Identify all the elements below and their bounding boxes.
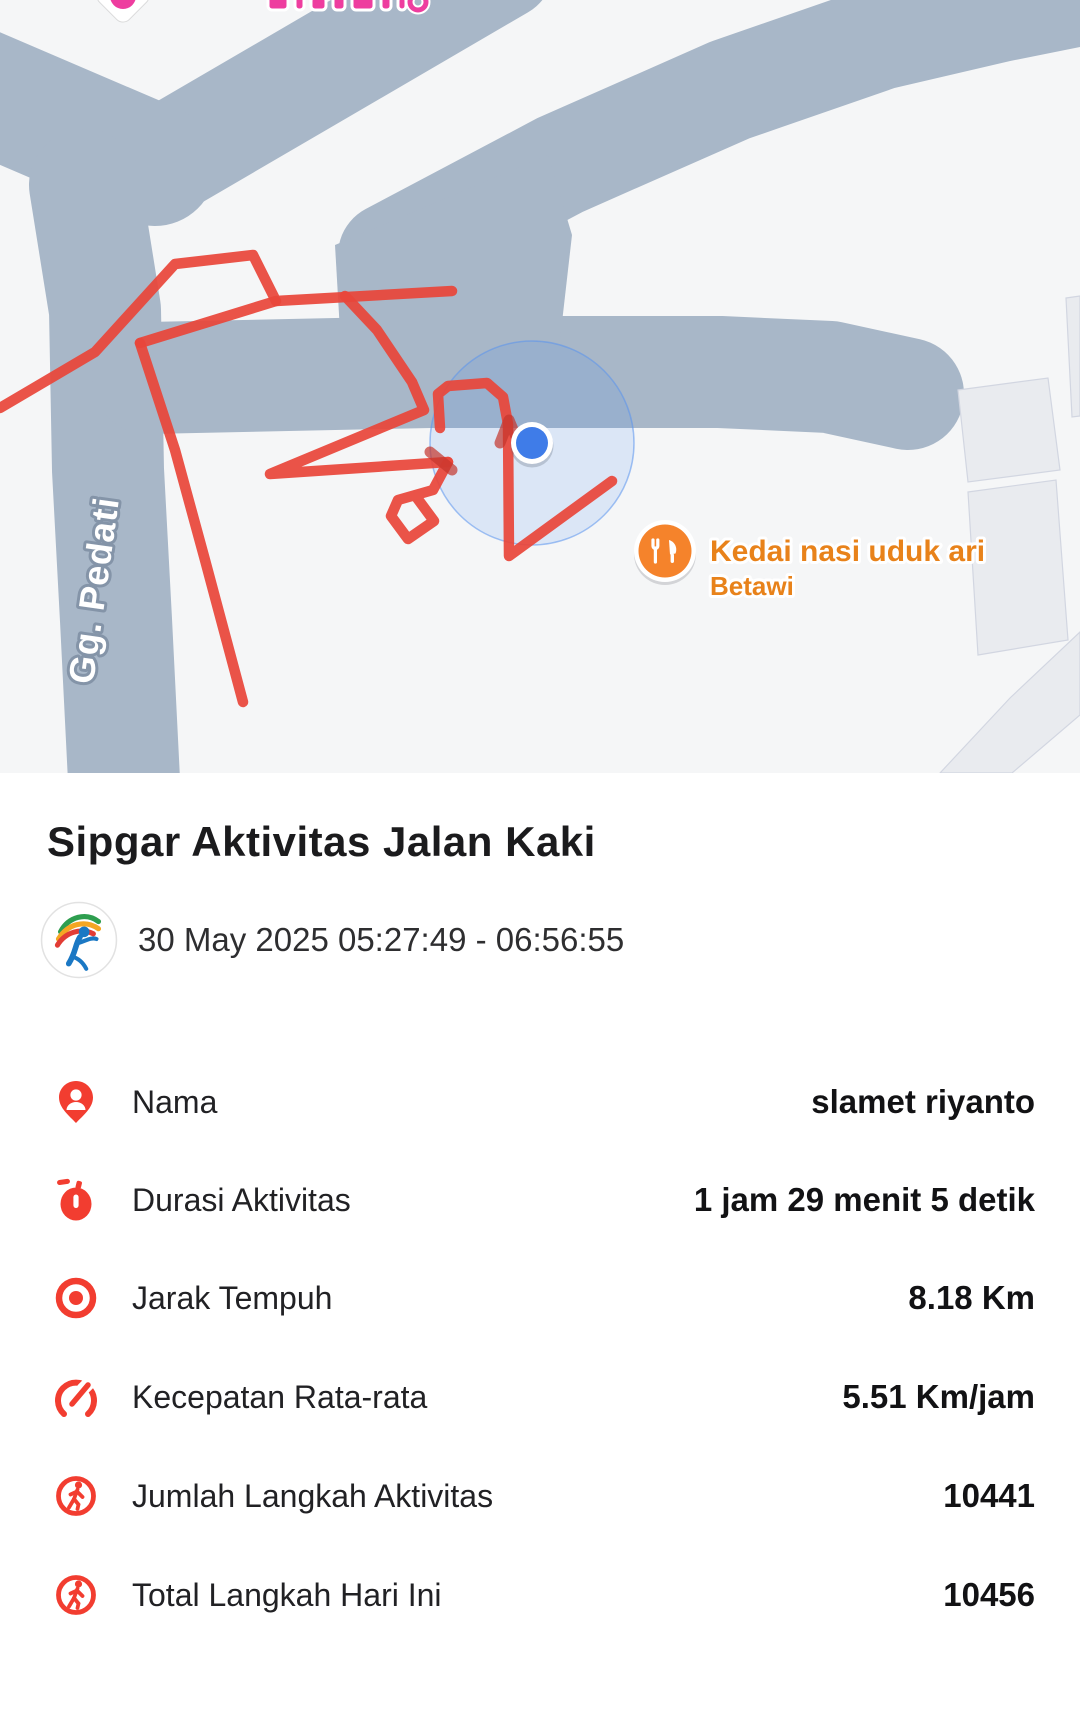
activity-datetime: 30 May 2025 05:27:49 - 06:56:55 <box>138 921 624 959</box>
stat-row-kecepatan: Kecepatan Rata-rata 5.51 Km/jam <box>52 1367 1035 1427</box>
stat-value: 10441 <box>943 1477 1035 1515</box>
steps-icon <box>52 1472 100 1520</box>
stat-row-langkah-aktivitas: Jumlah Langkah Aktivitas 10441 <box>52 1466 1035 1526</box>
stat-row-langkah-total: Total Langkah Hari Ini 10456 <box>52 1565 1035 1625</box>
current-location-dot <box>511 422 554 468</box>
stat-row-nama: Nama slamet riyanto <box>52 1072 1035 1132</box>
stat-value: 1 jam 29 menit 5 detik <box>694 1181 1035 1219</box>
target-icon <box>52 1274 100 1322</box>
restaurant-icon <box>639 525 692 578</box>
stat-value: 8.18 Km <box>908 1279 1035 1317</box>
sipgar-logo <box>40 901 118 979</box>
stopwatch-icon <box>52 1176 100 1224</box>
stat-value: slamet riyanto <box>811 1083 1035 1121</box>
page-title: Sipgar Aktivitas Jalan Kaki <box>47 818 596 866</box>
activity-detail-screen: Kedai nasi uduk ari Betawi Gg. Pedati <box>0 0 1080 1717</box>
stat-label: Durasi Aktivitas <box>132 1182 694 1219</box>
poi-name[interactable]: Kedai nasi uduk ari <box>710 535 985 568</box>
stat-value: 5.51 Km/jam <box>842 1378 1035 1416</box>
stat-row-jarak: Jarak Tempuh 8.18 Km <box>52 1268 1035 1328</box>
speedometer-icon <box>52 1373 100 1421</box>
stat-value: 10456 <box>943 1576 1035 1614</box>
steps-icon <box>52 1571 100 1619</box>
stat-label: Total Langkah Hari Ini <box>132 1577 943 1614</box>
stat-label: Nama <box>132 1084 811 1121</box>
stat-label: Kecepatan Rata-rata <box>132 1379 842 1416</box>
poi-category[interactable]: Betawi <box>710 571 794 601</box>
activity-source-row: 30 May 2025 05:27:49 - 06:56:55 <box>40 900 624 980</box>
stat-label: Jarak Tempuh <box>132 1280 908 1317</box>
person-pin-icon <box>52 1078 100 1126</box>
knife-handle <box>671 554 674 564</box>
stat-label: Jumlah Langkah Aktivitas <box>132 1478 943 1515</box>
map[interactable]: Kedai nasi uduk ari Betawi Gg. Pedati <box>0 0 1080 773</box>
stat-row-durasi: Durasi Aktivitas 1 jam 29 menit 5 detik <box>52 1170 1035 1230</box>
